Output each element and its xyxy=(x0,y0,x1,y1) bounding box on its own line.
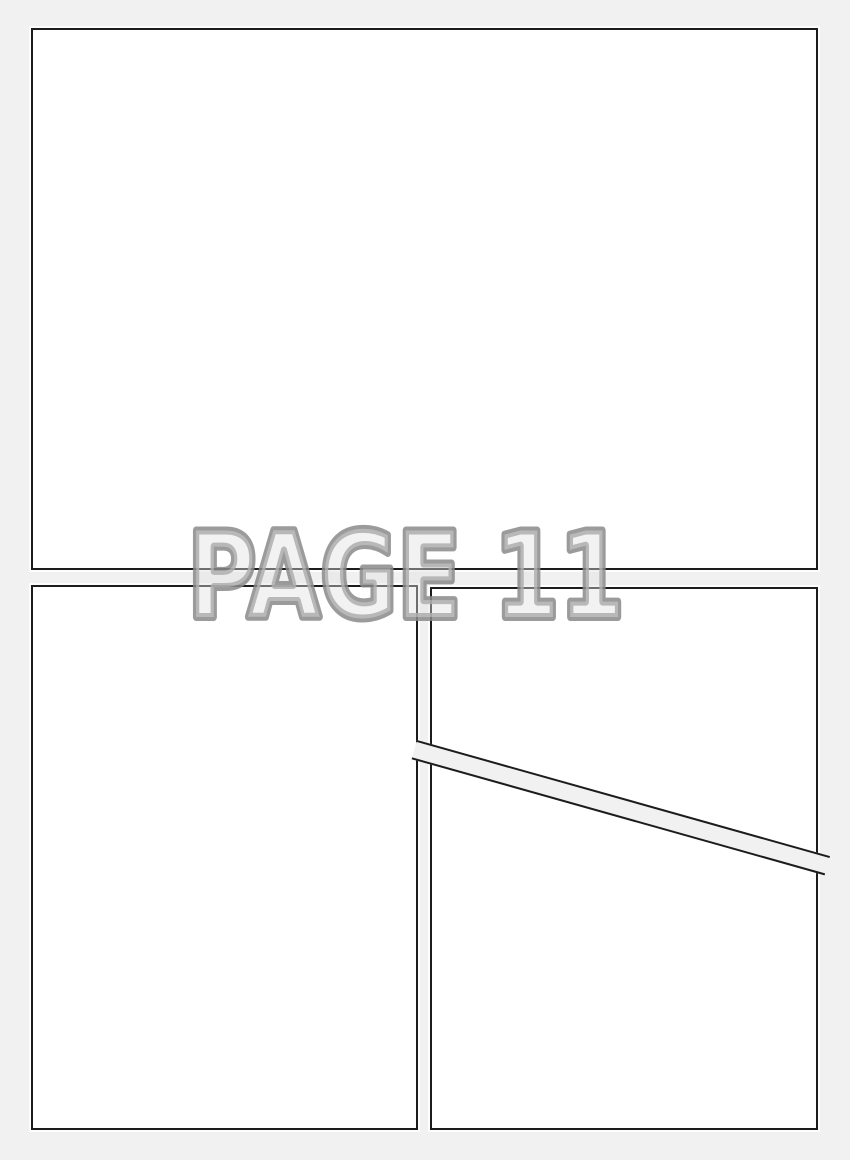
comic-panel-2 xyxy=(31,585,418,1130)
comic-panel-right-area xyxy=(430,587,818,1130)
comic-page-template: PAGE 11 xyxy=(0,0,850,1160)
comic-panel-1 xyxy=(31,28,818,570)
